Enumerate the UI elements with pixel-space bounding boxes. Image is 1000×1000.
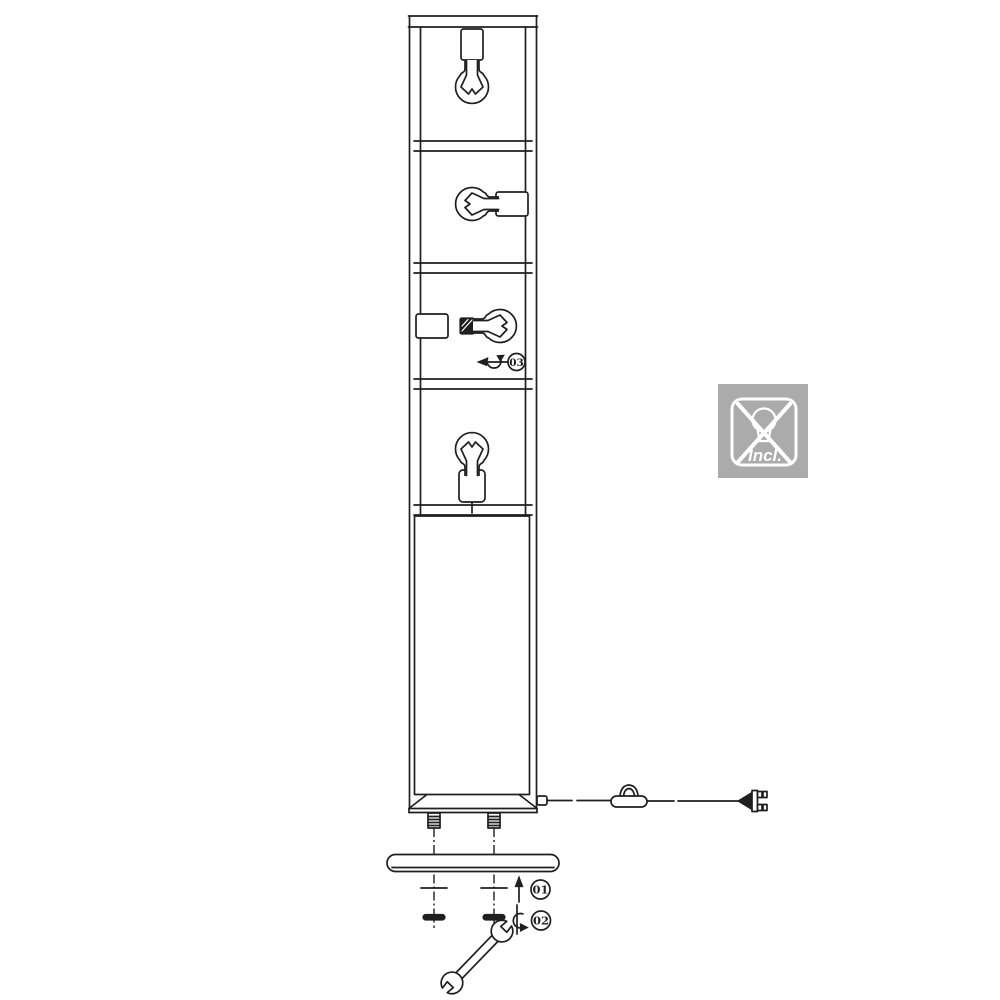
- step-label-01: 01: [532, 883, 548, 897]
- plug-strain-relief: [738, 793, 752, 810]
- step-label-03: 03: [509, 357, 524, 369]
- bulb-icon: [456, 433, 489, 476]
- lamp-section-2: [456, 188, 528, 221]
- bulb-icon: [473, 310, 516, 343]
- socket-top: [461, 29, 483, 60]
- washer-foot: [483, 915, 505, 921]
- step-badge-03: 03: [508, 354, 525, 371]
- step-label-02: 02: [533, 914, 549, 928]
- plug-pin: [758, 805, 763, 811]
- power-plug-icon: [738, 791, 767, 812]
- socket-right: [496, 192, 528, 216]
- shelf-2: [414, 263, 532, 273]
- plug-pin-tip: [763, 805, 767, 811]
- badge-label: Incl.: [748, 446, 782, 465]
- lamp-section-3: 03: [416, 310, 525, 371]
- power-cord: [537, 785, 767, 812]
- wrench-icon: [437, 916, 517, 998]
- plug-pin: [758, 792, 763, 798]
- lower-panel: [415, 516, 530, 795]
- base-mounting: 01 02: [387, 813, 559, 934]
- lamp-section-4: [456, 433, 489, 513]
- switch-body: [611, 796, 647, 807]
- inline-cord-switch-icon: [611, 785, 647, 807]
- threaded-stud-right: [488, 813, 500, 828]
- rotate-screw-icon: [513, 905, 527, 934]
- arrow-up-icon: [515, 877, 522, 902]
- shelf-3: [414, 379, 532, 389]
- step-badge-02: 02: [532, 911, 551, 930]
- washer-foot: [423, 915, 445, 921]
- lamp-frame: [409, 16, 538, 813]
- shelf-1: [414, 141, 532, 151]
- cord-grommet: [537, 796, 547, 805]
- switch-dome: [620, 785, 638, 796]
- rotate-bulb-icon: [478, 355, 508, 368]
- shelf-4: [414, 505, 532, 515]
- step-badge-01: 01: [531, 880, 550, 899]
- column-foot-bevel: [409, 795, 537, 813]
- base-plate: [387, 855, 559, 872]
- page: 03: [0, 0, 1000, 1000]
- socket-left: [416, 314, 448, 338]
- lamp-assembly-diagram: 03: [0, 0, 1000, 1000]
- bulb-icon: [456, 60, 489, 103]
- bulb-icon: [456, 188, 499, 221]
- bulb-not-included-badge: Incl.: [718, 384, 808, 478]
- lamp-section-1: [456, 29, 489, 103]
- threaded-stud-left: [428, 813, 440, 828]
- plug-pin-tip: [763, 792, 767, 798]
